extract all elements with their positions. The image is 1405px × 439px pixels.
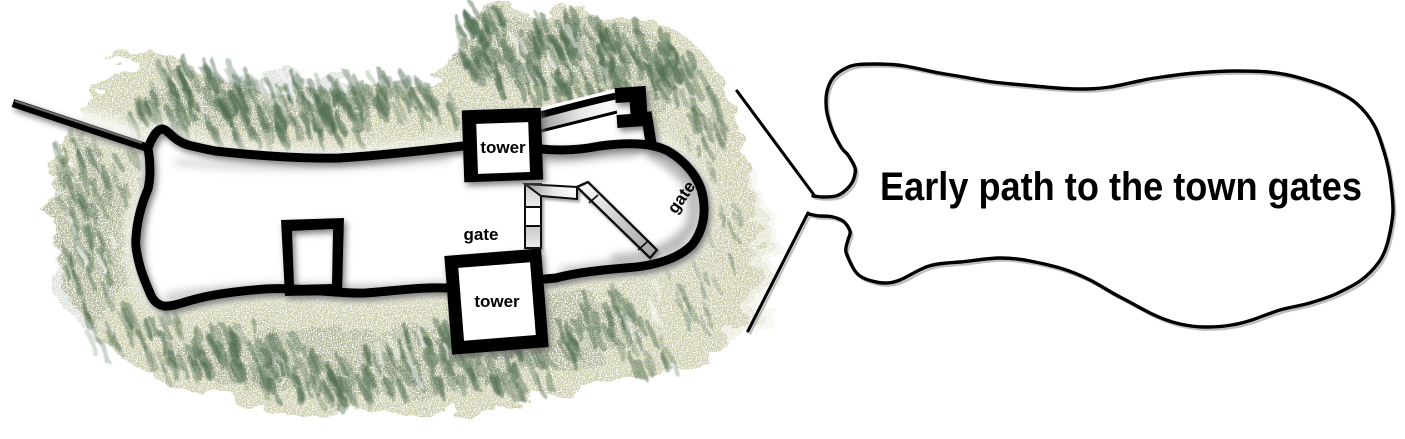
svg-text:tower: tower [480, 138, 526, 157]
svg-text:tower: tower [474, 292, 520, 311]
svg-text:Early path to the town gates: Early path to the town gates [880, 165, 1362, 209]
svg-text:gate: gate [464, 225, 499, 244]
